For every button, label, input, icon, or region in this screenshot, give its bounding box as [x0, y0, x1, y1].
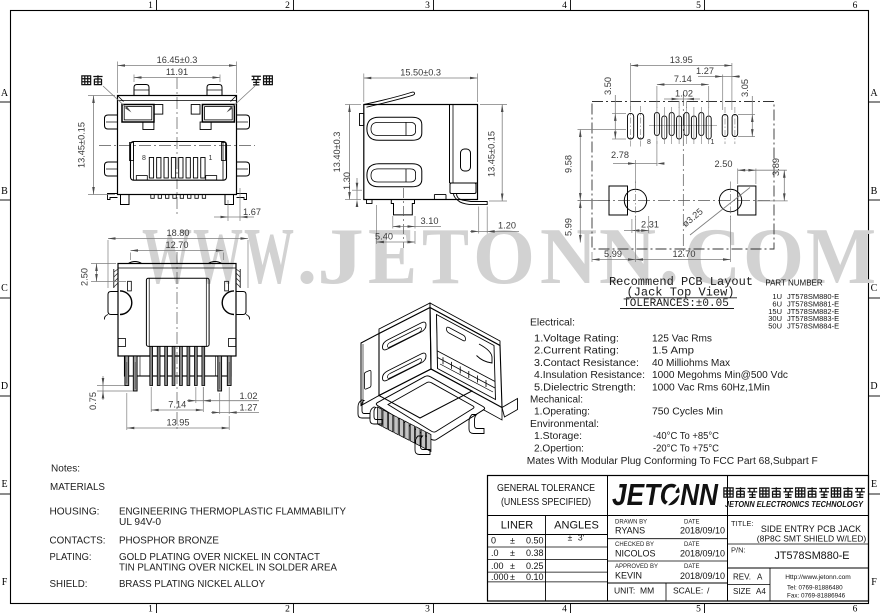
svg-text:12.70: 12.70 [166, 240, 189, 250]
svg-text:SHIELD:: SHIELD: [50, 579, 88, 590]
svg-text:Fax: 0769-81886946: Fax: 0769-81886946 [787, 593, 846, 600]
svg-text:1000 Megohms Min@500 Vdc: 1000 Megohms Min@500 Vdc [652, 370, 788, 381]
svg-text:7.14: 7.14 [674, 74, 692, 84]
svg-text:16.45±0.3: 16.45±0.3 [157, 55, 198, 65]
svg-text:2018/09/10: 2018/09/10 [680, 526, 725, 536]
svg-text:HOUSING:: HOUSING: [50, 507, 100, 518]
svg-text:ANGLES: ANGLES [554, 520, 599, 532]
svg-text:.00: .00 [491, 561, 504, 571]
svg-text:5.40: 5.40 [375, 232, 393, 242]
svg-text:2018/09/10: 2018/09/10 [680, 549, 725, 559]
svg-text:±: ± [568, 533, 573, 543]
svg-text:UL 94V-0: UL 94V-0 [119, 517, 161, 528]
svg-text:11.91: 11.91 [166, 67, 188, 77]
svg-text:F: F [2, 577, 8, 588]
svg-text:LINER: LINER [501, 520, 533, 532]
svg-text:SIZE: SIZE [733, 587, 751, 596]
svg-text:1: 1 [711, 139, 715, 146]
svg-text:PHOSPHOR BRONZE: PHOSPHOR BRONZE [119, 536, 219, 547]
svg-text:13.45±0.15: 13.45±0.15 [77, 122, 87, 168]
svg-text:2.50: 2.50 [80, 268, 90, 286]
svg-text:Environmental:: Environmental: [530, 419, 599, 430]
svg-text:RYANS: RYANS [615, 526, 645, 536]
svg-text:JT578SM880-E: JT578SM880-E [774, 550, 849, 562]
svg-text:1.Operating:: 1.Operating: [534, 407, 590, 418]
svg-text:0.38: 0.38 [526, 548, 544, 558]
svg-text:2: 2 [285, 605, 290, 613]
svg-text:-40°C To +85°C: -40°C To +85°C [653, 431, 719, 442]
svg-text:9.58: 9.58 [564, 155, 574, 173]
svg-text:-20°C To +75°C: -20°C To +75°C [653, 443, 719, 454]
svg-text:BRASS PLATING NICKEL ALLOY: BRASS PLATING NICKEL ALLOY [119, 579, 265, 590]
svg-text:125 Vac Rms: 125 Vac Rms [652, 334, 712, 345]
svg-text:1.67: 1.67 [243, 207, 261, 217]
svg-text:SCALE:: SCALE: [673, 586, 703, 596]
svg-text:2018/09/10: 2018/09/10 [680, 571, 725, 581]
svg-text:1.Voltage Rating:: 1.Voltage Rating: [534, 334, 619, 345]
svg-text:W: W [244, 213, 294, 301]
svg-text:5.Dielectric Strength:: 5.Dielectric Strength: [534, 382, 636, 393]
svg-text:2.78: 2.78 [611, 150, 629, 160]
svg-text:PLATING:: PLATING: [50, 552, 92, 563]
svg-text:50U: 50U [768, 322, 782, 331]
svg-text:B: B [1, 186, 8, 197]
svg-text:Electrical:: Electrical: [530, 318, 575, 329]
svg-text:2.Opertion:: 2.Opertion: [534, 443, 584, 454]
svg-text:(UNLESS SPECIFIED): (UNLESS SPECIFIED) [501, 496, 591, 508]
svg-text:J: J [317, 213, 364, 301]
svg-text:4: 4 [562, 1, 567, 11]
svg-text:Notes:: Notes: [51, 463, 80, 474]
svg-text:Tel: 0769-81886480: Tel: 0769-81886480 [787, 585, 843, 592]
svg-text:6: 6 [853, 1, 858, 11]
svg-text:4.Insulation Resistance:: 4.Insulation Resistance: [534, 370, 645, 381]
svg-text:TIN PLANTING OVER NICKEL IN SO: TIN PLANTING OVER NICKEL IN SOLDER AREA [119, 563, 337, 574]
svg-text:Http://www.jetonn.com: Http://www.jetonn.com [785, 574, 851, 581]
svg-text:.0: .0 [491, 548, 499, 558]
svg-text:JETONN ELECTRONICS TECHNOLOGY: JETONN ELECTRONICS TECHNOLOGY [725, 499, 864, 509]
svg-text:13.40±0.3: 13.40±0.3 [332, 132, 342, 173]
svg-text:E: E [1, 479, 7, 490]
svg-text:750 Cycles Min: 750 Cycles Min [652, 407, 723, 418]
svg-text:B: B [871, 186, 878, 197]
svg-text:0: 0 [491, 536, 496, 546]
svg-text:DATE: DATE [684, 542, 700, 548]
svg-text:UNIT:: UNIT: [614, 586, 635, 596]
svg-text:NICOLOS: NICOLOS [615, 549, 656, 559]
svg-text:GOLD PLATING OVER NICKEL IN CO: GOLD PLATING OVER NICKEL IN CONTACT [119, 552, 321, 563]
svg-text:A: A [1, 88, 9, 99]
svg-text:3: 3 [425, 605, 430, 613]
svg-text:CHECKED BY: CHECKED BY [615, 542, 654, 548]
svg-text:1.02: 1.02 [240, 391, 258, 401]
svg-text:MM: MM [640, 586, 654, 596]
svg-text:7.14: 7.14 [168, 400, 186, 410]
svg-text:3.50: 3.50 [603, 77, 613, 95]
svg-text:15.50±0.3: 15.50±0.3 [400, 68, 441, 78]
svg-text:1: 1 [209, 155, 213, 162]
svg-text:5: 5 [696, 605, 701, 613]
svg-text:.: . [297, 213, 317, 301]
svg-text:MATERIALS: MATERIALS [50, 482, 105, 493]
svg-text:3': 3' [578, 533, 585, 543]
svg-text:13.45±0.15: 13.45±0.15 [487, 131, 497, 177]
svg-text:(8P8C SMT SHIELD W/LED): (8P8C SMT SHIELD W/LED) [757, 533, 867, 543]
svg-text:1.5 Amp: 1.5 Amp [652, 346, 695, 357]
svg-text:3: 3 [425, 1, 430, 11]
svg-text:M: M [806, 213, 876, 301]
svg-text:±: ± [510, 561, 515, 571]
svg-text:.000: .000 [491, 572, 509, 582]
svg-text:A4: A4 [756, 587, 766, 596]
svg-text:Mates With Modular Plug Confor: Mates With Modular Plug Conforming To FC… [527, 456, 818, 467]
svg-text:D: D [1, 381, 8, 392]
svg-text:3.Contact Resistance:: 3.Contact Resistance: [534, 358, 639, 369]
svg-text:0.10: 0.10 [526, 572, 544, 582]
svg-text:8: 8 [142, 155, 146, 162]
svg-text:0.25: 0.25 [526, 561, 544, 571]
svg-text:8: 8 [647, 139, 651, 146]
svg-text:JETONN: JETONN [612, 477, 719, 512]
svg-text:GENERAL TOLERANCE: GENERAL TOLERANCE [497, 482, 595, 494]
svg-text:±: ± [510, 572, 515, 582]
svg-text:/: / [707, 586, 710, 596]
svg-text:1.Storage:: 1.Storage: [534, 431, 582, 442]
svg-text:5.99: 5.99 [564, 218, 574, 236]
svg-text:F: F [871, 577, 877, 588]
svg-text:2.Current Rating:: 2.Current Rating: [534, 346, 619, 357]
svg-text:2.31: 2.31 [641, 220, 659, 230]
svg-text:2: 2 [285, 1, 290, 11]
svg-text:DATE: DATE [684, 564, 700, 570]
svg-text:1: 1 [148, 1, 153, 11]
svg-text:40 Milliohms Max: 40 Milliohms Max [652, 358, 730, 369]
svg-text:1.02: 1.02 [675, 89, 693, 99]
svg-text:C: C [1, 283, 8, 294]
svg-text:APPROVED BY: APPROVED BY [615, 564, 658, 570]
svg-text:Mechanical:: Mechanical: [530, 395, 583, 406]
svg-text:3.89: 3.89 [771, 158, 781, 176]
svg-text:1.27: 1.27 [240, 403, 258, 413]
svg-text:A: A [757, 573, 763, 582]
svg-text:±: ± [510, 548, 515, 558]
svg-text:1.30: 1.30 [342, 172, 352, 190]
svg-text:5: 5 [696, 1, 701, 11]
svg-text:1000 Vac Rms 60Hz,1Min: 1000 Vac Rms 60Hz,1Min [652, 382, 770, 393]
svg-text:2.50: 2.50 [715, 159, 733, 169]
svg-text:KEVIN: KEVIN [615, 571, 642, 581]
svg-text:TITLE:: TITLE: [731, 519, 754, 528]
svg-text:3.10: 3.10 [421, 216, 439, 226]
svg-text:12.70: 12.70 [673, 249, 696, 259]
svg-text:A: A [870, 88, 878, 99]
svg-text:0.50: 0.50 [526, 536, 544, 546]
svg-text:4: 4 [562, 605, 567, 613]
svg-text:D: D [870, 381, 877, 392]
svg-text:3.05: 3.05 [740, 79, 750, 97]
svg-text:JT578SM884-E: JT578SM884-E [787, 322, 839, 331]
svg-text:E: E [871, 479, 877, 490]
svg-text:6: 6 [853, 605, 858, 613]
svg-text:1.20: 1.20 [498, 221, 516, 231]
svg-text:PART NUMBER: PART NUMBER [765, 279, 823, 288]
svg-text:13.95: 13.95 [167, 418, 190, 428]
svg-text:13.95: 13.95 [670, 55, 693, 65]
svg-text:REV.: REV. [733, 573, 751, 582]
svg-text:1: 1 [148, 605, 153, 613]
svg-text:5.99: 5.99 [604, 249, 622, 259]
svg-text:P/N:: P/N: [731, 546, 746, 555]
svg-text:1.27: 1.27 [696, 66, 714, 76]
svg-text:18.80: 18.80 [167, 228, 190, 238]
svg-text:CONTACTS:: CONTACTS: [50, 536, 106, 547]
svg-text:±: ± [510, 536, 515, 546]
svg-text:0.75: 0.75 [88, 392, 98, 410]
